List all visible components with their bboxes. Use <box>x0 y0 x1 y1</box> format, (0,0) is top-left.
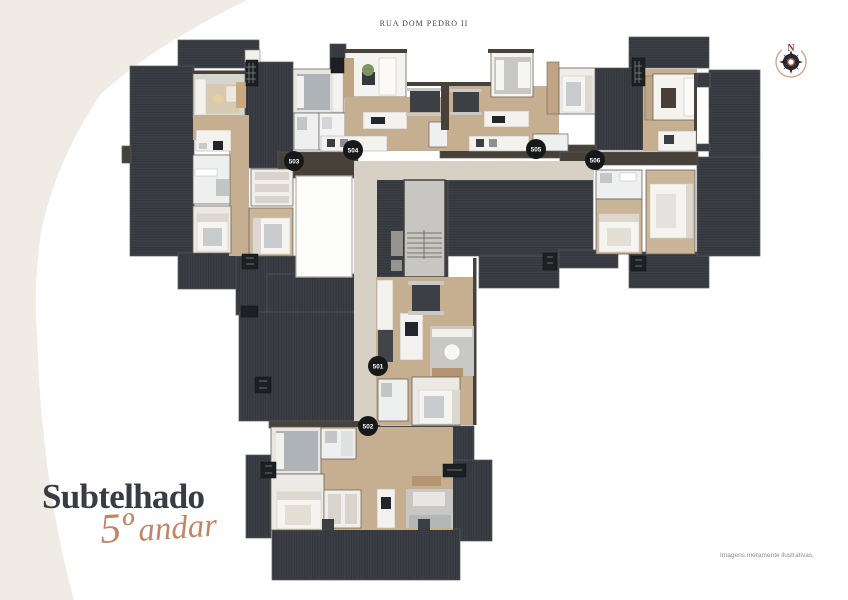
svg-text:5º: 5º <box>98 505 136 553</box>
svg-text:504: 504 <box>348 147 359 154</box>
svg-text:Imagens meramente ilustrativas: Imagens meramente ilustrativas. <box>720 552 814 559</box>
svg-text:505: 505 <box>531 146 542 153</box>
svg-text:501: 501 <box>373 363 384 370</box>
svg-text:andar: andar <box>137 508 218 549</box>
svg-text:502: 502 <box>363 423 374 430</box>
svg-text:503: 503 <box>289 158 300 165</box>
svg-text:506: 506 <box>590 157 601 164</box>
svg-text:RUA DOM PEDRO II: RUA DOM PEDRO II <box>380 19 469 28</box>
